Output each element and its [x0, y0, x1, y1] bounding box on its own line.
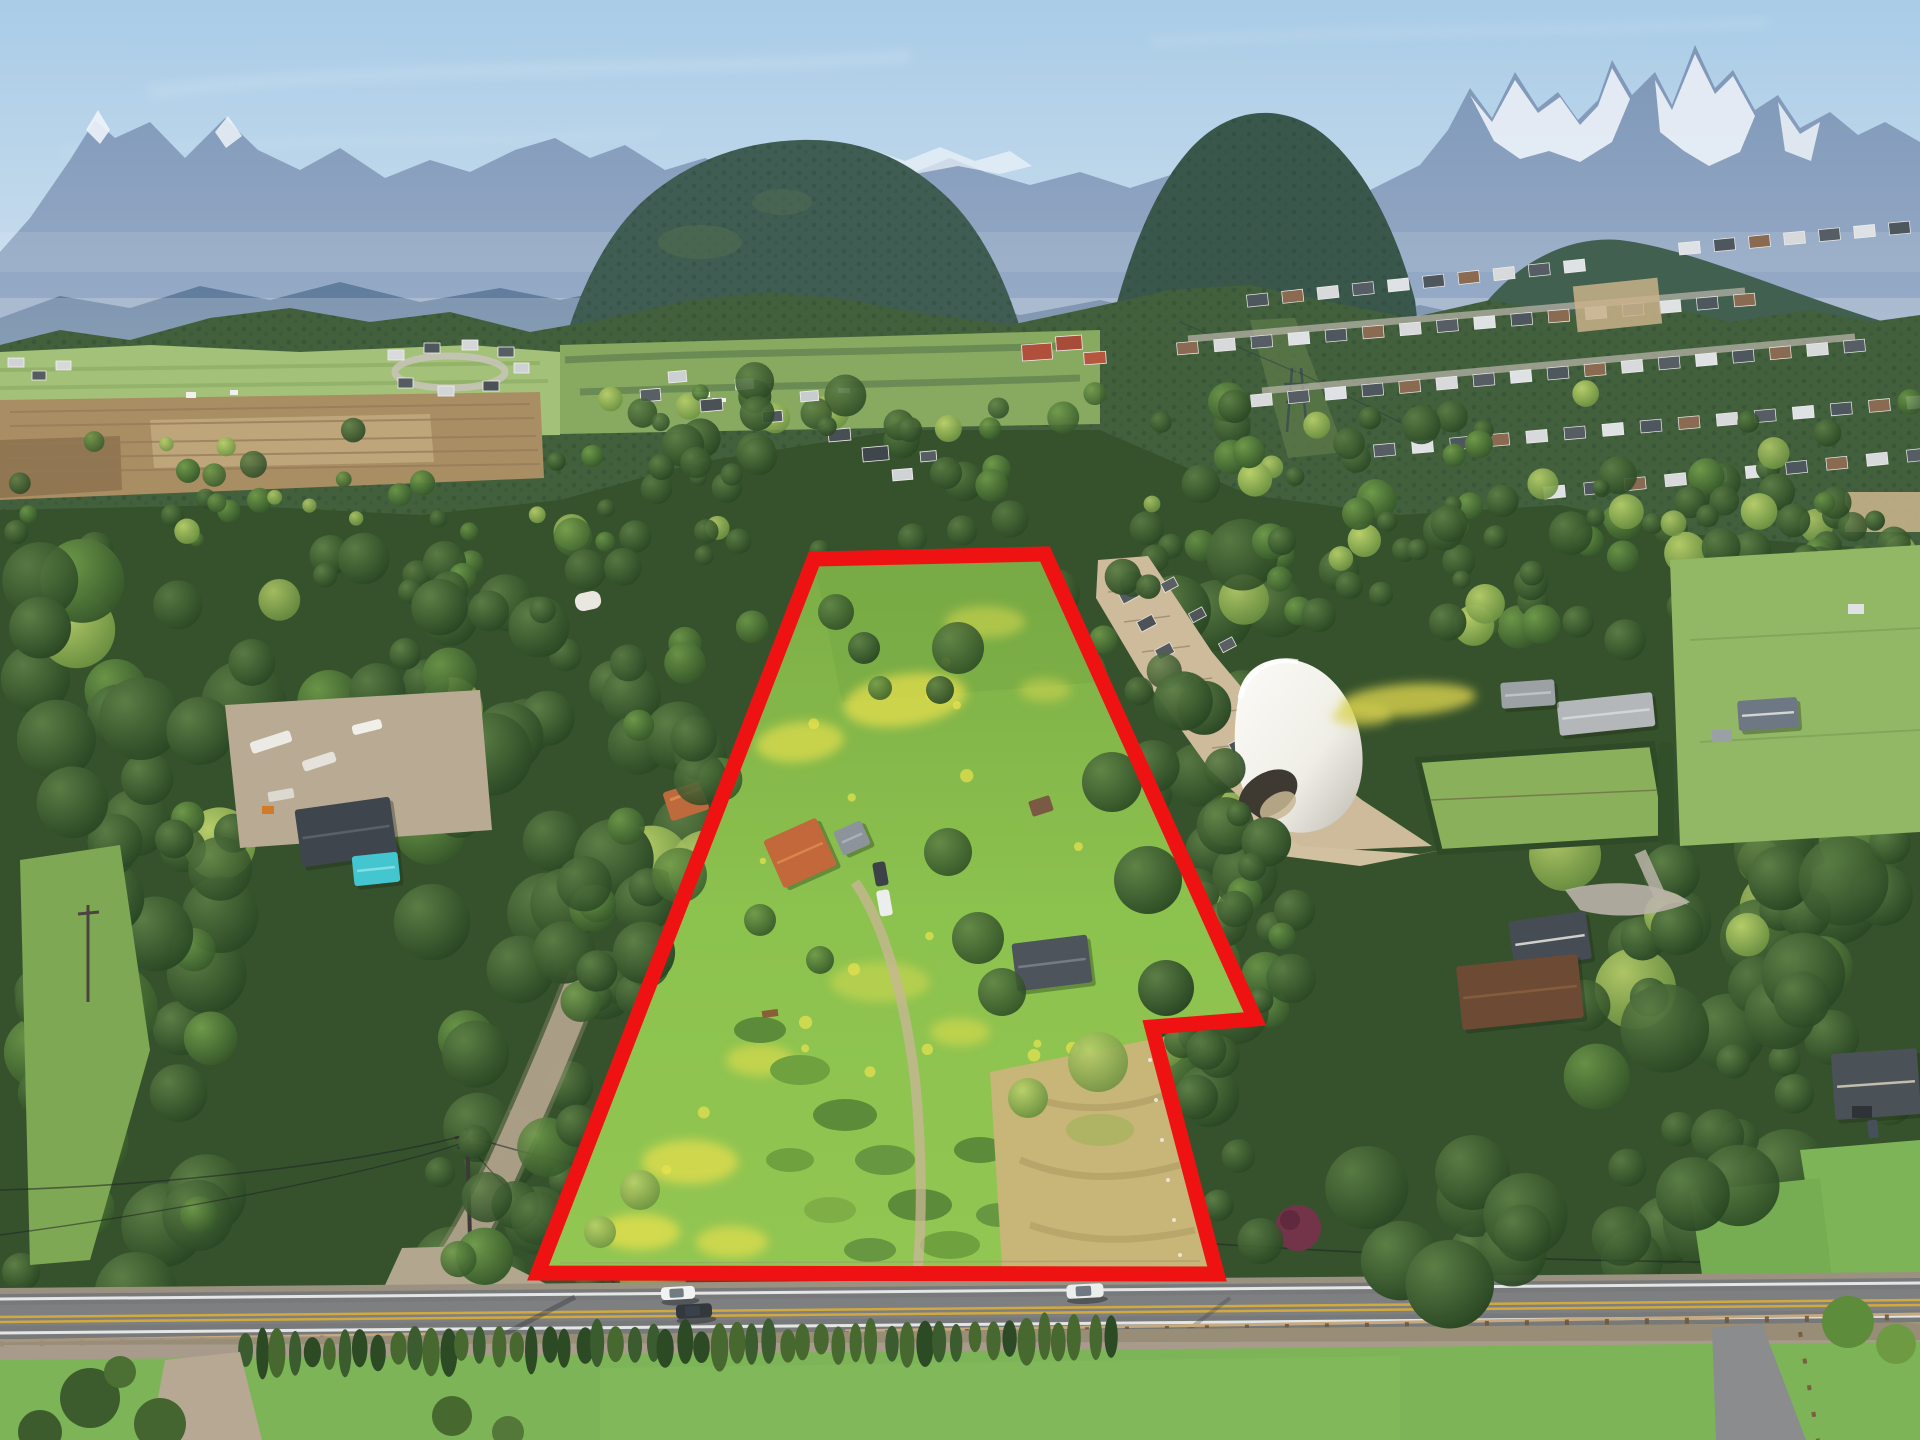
aerial-photo [0, 0, 1920, 1440]
garage-door [1852, 1106, 1872, 1118]
bottom-right-house [1831, 1048, 1920, 1124]
white-farmhouse [1737, 697, 1802, 735]
white-sedan-eastbound [1066, 1283, 1108, 1305]
flat-roof-outbuilding [1500, 679, 1559, 713]
aerial-photo-canvas [0, 0, 1920, 1440]
swimming-pool [352, 851, 404, 890]
parked-car-right [1867, 1120, 1879, 1139]
pasture-hedge [1658, 742, 1674, 844]
cleared-dirt-patch [1573, 278, 1662, 333]
white-sedan-westbound [661, 1285, 700, 1306]
log-home [1456, 953, 1587, 1034]
east-fields [1670, 545, 1920, 846]
